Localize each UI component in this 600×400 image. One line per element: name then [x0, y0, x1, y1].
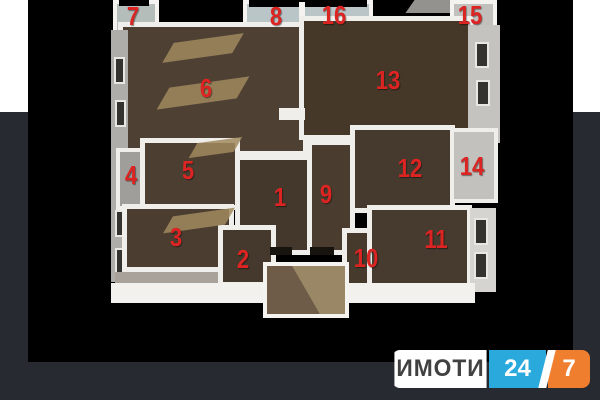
window	[474, 218, 488, 245]
window-strip	[159, 0, 243, 7]
room-4-number: 4	[125, 162, 137, 188]
room-6-number: 6	[200, 75, 212, 101]
room-10-number: 10	[354, 245, 379, 271]
room-16-number: 16	[322, 2, 347, 28]
window	[114, 57, 125, 84]
window	[474, 252, 488, 279]
window	[475, 42, 489, 68]
door-opening	[310, 247, 334, 255]
door-opening	[270, 247, 292, 255]
room-5-number: 5	[182, 157, 194, 183]
floor-plan: 1 2 3 4 5 6 7 8 9 10 11 12 13 14 15 16	[113, 0, 499, 320]
room-1-number: 1	[274, 184, 286, 210]
wall-stub	[279, 108, 305, 120]
room-14-number: 14	[460, 153, 485, 179]
room-13-number: 13	[376, 67, 401, 93]
entry-terrace-floor	[263, 262, 349, 318]
room-8-number: 8	[270, 3, 282, 29]
screenshot-stage: 1 2 3 4 5 6 7 8 9 10 11 12 13 14 15 16 И…	[0, 0, 600, 400]
room-3-number: 3	[170, 224, 182, 250]
watermark-logo: ИМОТИ 24 7	[392, 350, 590, 388]
room-12-number: 12	[398, 155, 423, 181]
room-11-floor	[367, 205, 472, 290]
room-15-number: 15	[458, 2, 483, 28]
logo-brand-text: ИМОТИ	[394, 350, 486, 388]
window	[476, 80, 490, 106]
room-2-number: 2	[237, 246, 249, 272]
room-7-number: 7	[127, 3, 139, 29]
logo-24-badge: 24	[489, 350, 546, 388]
window-strip	[249, 0, 367, 7]
room-9-number: 9	[320, 181, 332, 207]
window	[115, 100, 126, 127]
listing-photo: 1 2 3 4 5 6 7 8 9 10 11 12 13 14 15 16	[28, 0, 573, 362]
room-11-number: 11	[424, 226, 447, 252]
